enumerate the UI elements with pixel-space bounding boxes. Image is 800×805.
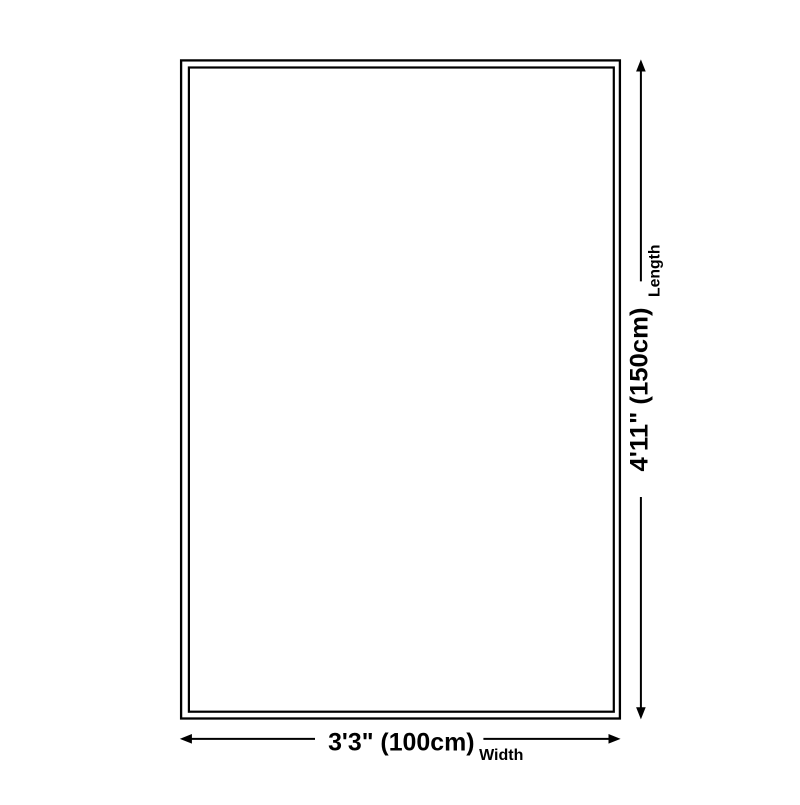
svg-text:Length: Length: [647, 245, 664, 298]
svg-text:4'11" (150cm): 4'11" (150cm): [626, 308, 654, 472]
svg-text:Width: Width: [479, 747, 523, 764]
svg-text:3'3" (100cm): 3'3" (100cm): [328, 728, 474, 756]
